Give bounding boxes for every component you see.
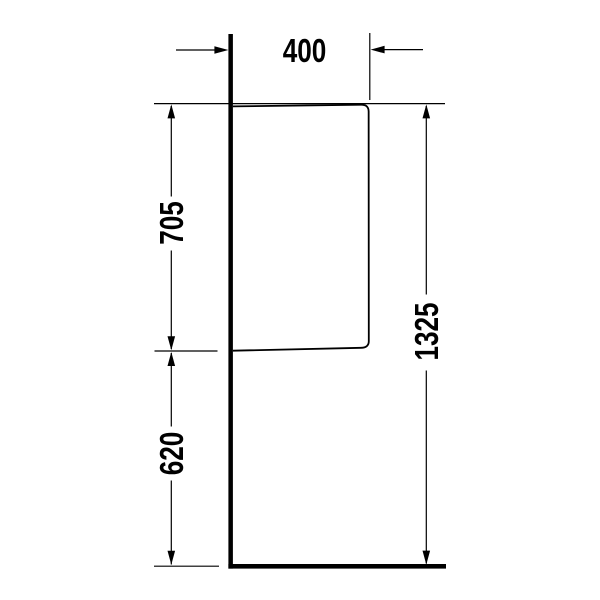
svg-text:705: 705 [154,201,191,245]
svg-text:400: 400 [283,33,327,70]
svg-text:620: 620 [154,432,191,476]
svg-text:1325: 1325 [409,302,446,360]
